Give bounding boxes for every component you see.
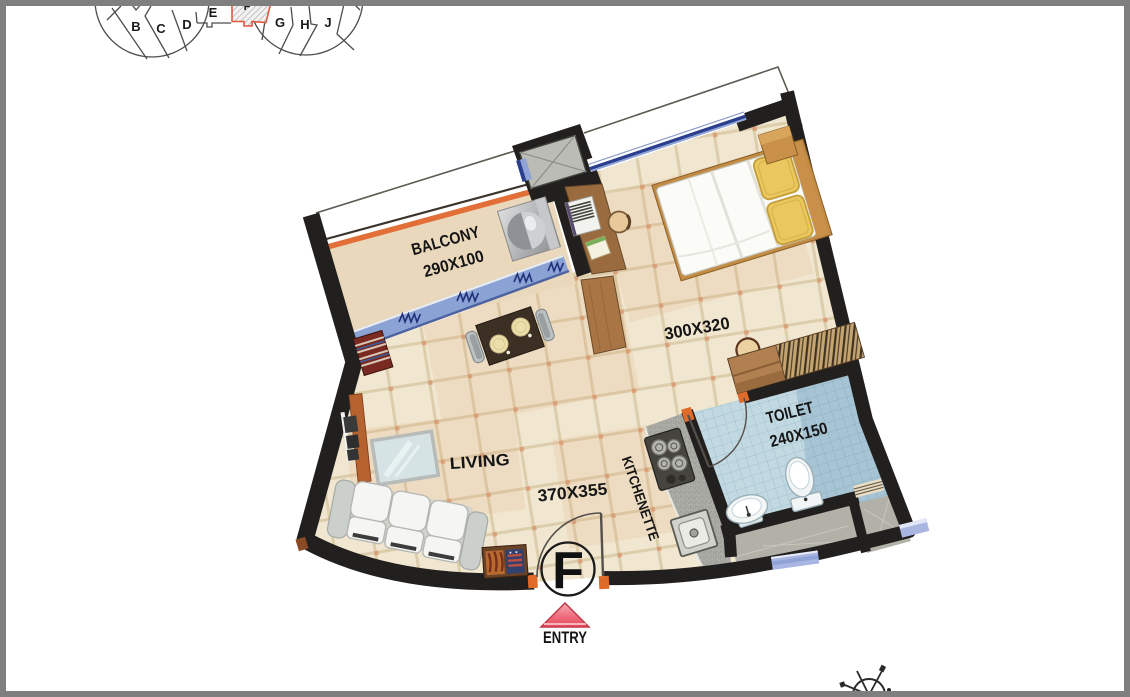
svg-text:J: J — [324, 15, 331, 30]
svg-text:D: D — [182, 17, 191, 32]
svg-text:ENTRY: ENTRY — [543, 629, 587, 647]
svg-text:G: G — [275, 15, 285, 30]
svg-text:F: F — [552, 542, 584, 600]
svg-text:C: C — [156, 21, 166, 36]
svg-text:H: H — [300, 17, 309, 32]
svg-text:E: E — [209, 5, 218, 20]
svg-text:B: B — [131, 19, 140, 34]
